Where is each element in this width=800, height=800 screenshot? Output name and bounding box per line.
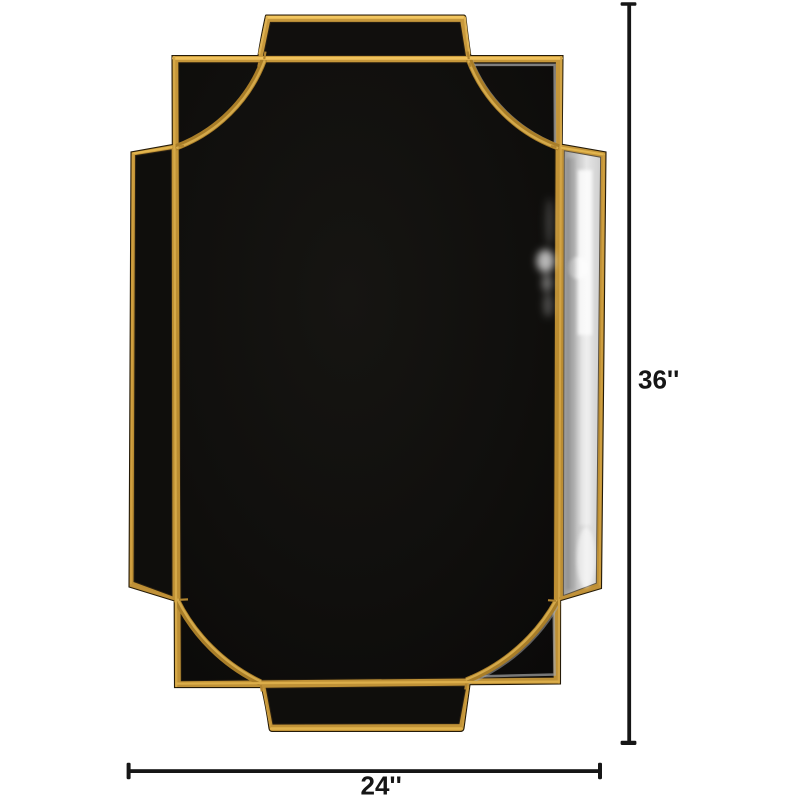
svg-text:24'': 24'' — [361, 771, 402, 800]
svg-text:36'': 36'' — [638, 365, 679, 395]
